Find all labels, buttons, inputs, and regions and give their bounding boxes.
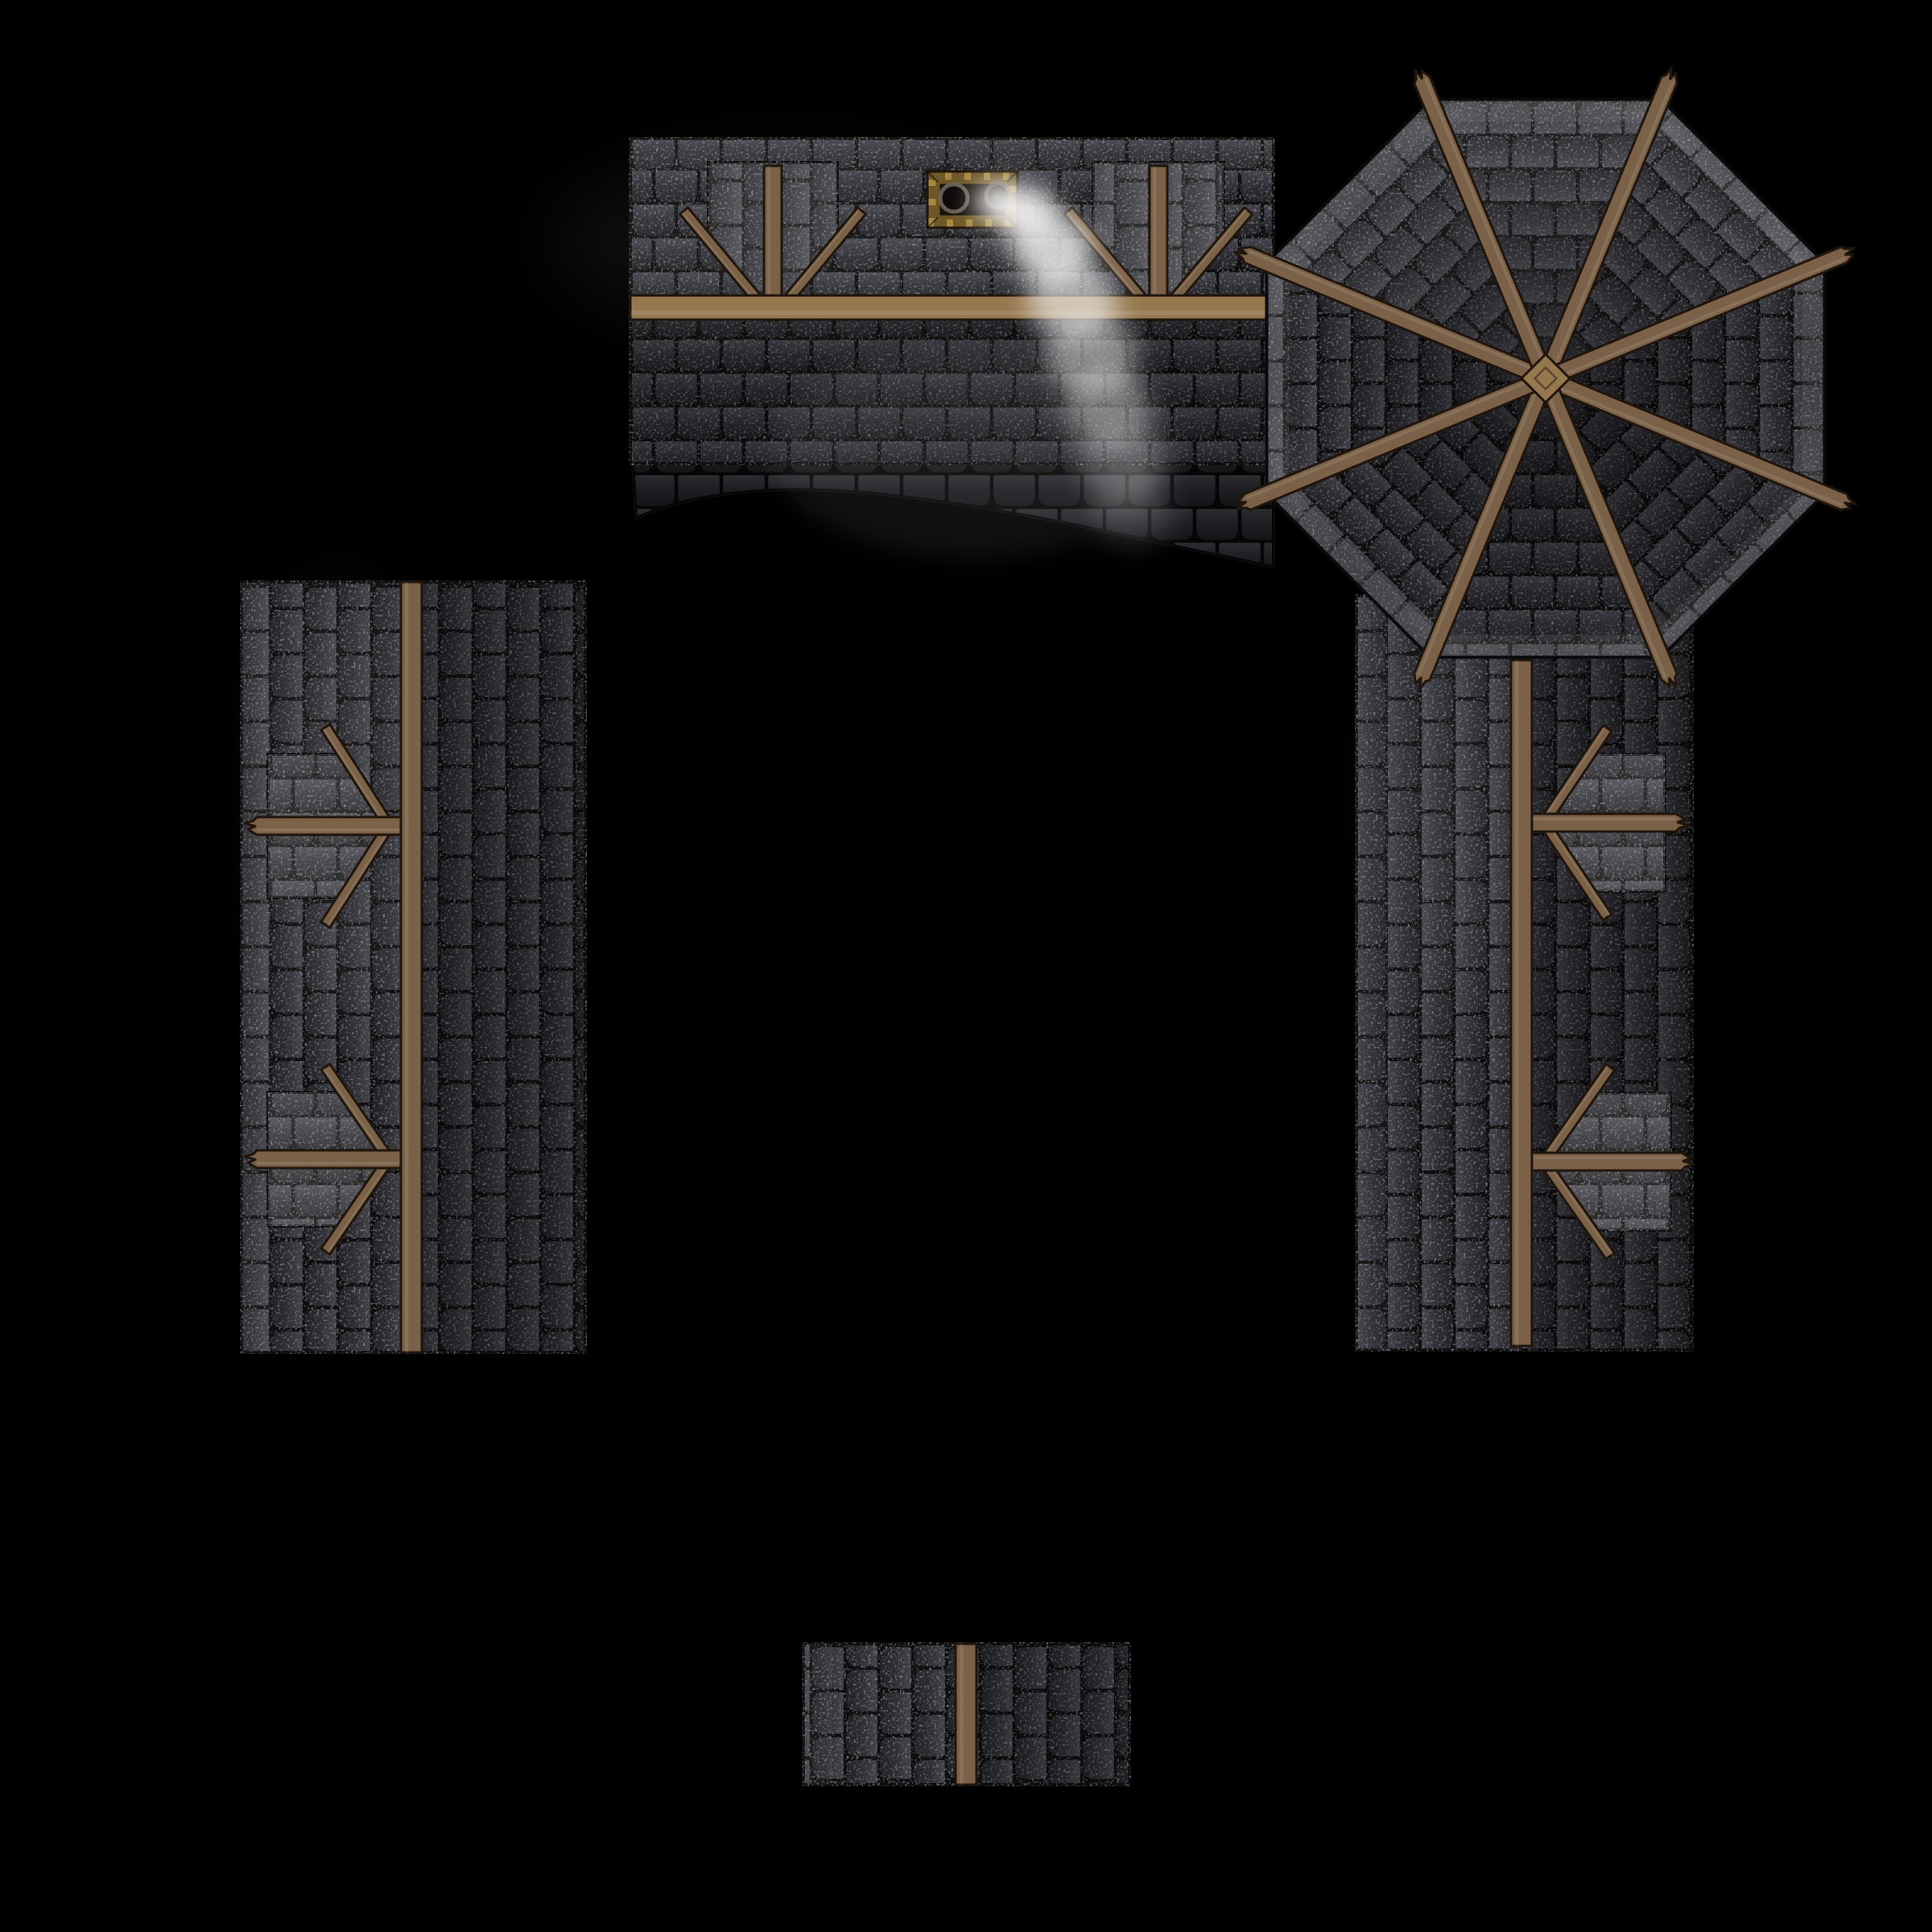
east-wing-north-dormer-gable-beam	[1513, 814, 1688, 832]
west-wing-east-slope-shadow	[421, 582, 585, 1352]
south-annex-ridge-beam	[956, 1644, 976, 1785]
battlemap-viewport	[0, 0, 1932, 1932]
east-wing-ridge-beam	[1511, 660, 1532, 1346]
south-annex-east-shadow	[976, 1644, 1129, 1785]
east-wing-ridge-beam-group	[1511, 660, 1532, 1346]
west-wing-eave-light	[242, 582, 270, 1352]
east-wing-eave-light	[1356, 596, 1389, 1350]
chimney-smoke-puff-9	[1092, 478, 1172, 546]
east-wing-east-slope-shadow	[1531, 596, 1692, 1350]
south-annex-eave-light	[803, 1644, 832, 1785]
chimney-pot-1	[940, 184, 968, 212]
north-hall-ridge-beam-group	[630, 295, 1275, 320]
west-wing-north-dormer-gable-beam	[245, 817, 420, 835]
east-wing-south-dormer-gable-beam	[1513, 1153, 1694, 1170]
west-wing-ridge-beam	[401, 582, 422, 1352]
rooftop-battlemap-canvas	[0, 0, 1932, 1932]
south-annex-ridge-beam-group	[956, 1644, 976, 1785]
west-wing-south-dormer-gable-beam	[245, 1150, 420, 1168]
north-hall-ridge-beam	[630, 295, 1275, 320]
west-wing-ridge-beam-group	[401, 582, 422, 1352]
